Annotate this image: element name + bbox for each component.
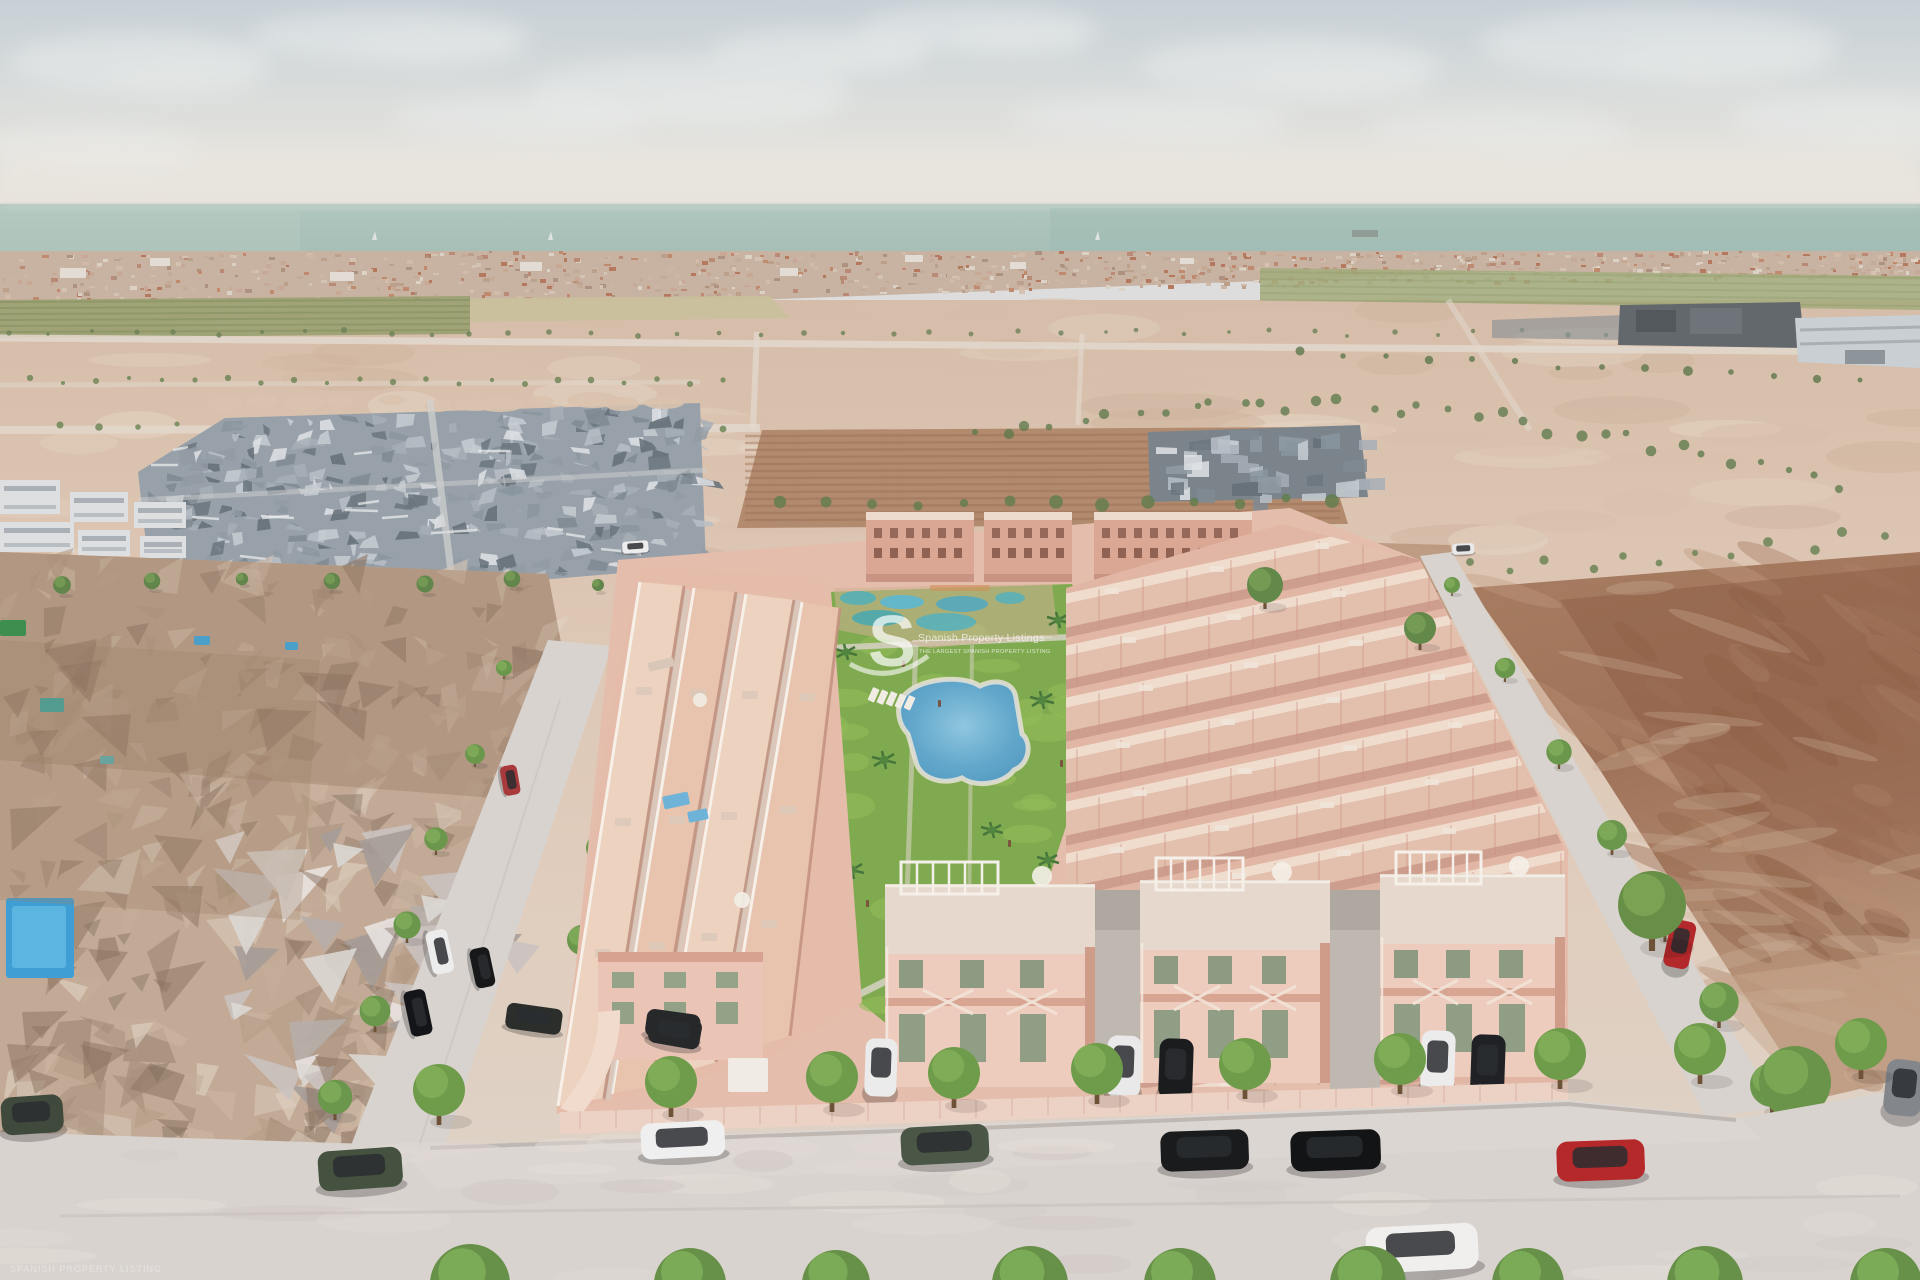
svg-text:THE LARGEST SPANISH PROPERTY L: THE LARGEST SPANISH PROPERTY LISTING [919, 649, 1051, 655]
svg-text:SPANISH PROPERTY LISTING: SPANISH PROPERTY LISTING [10, 1264, 162, 1274]
svg-text:Spanish Property Listings: Spanish Property Listings [918, 632, 1045, 644]
